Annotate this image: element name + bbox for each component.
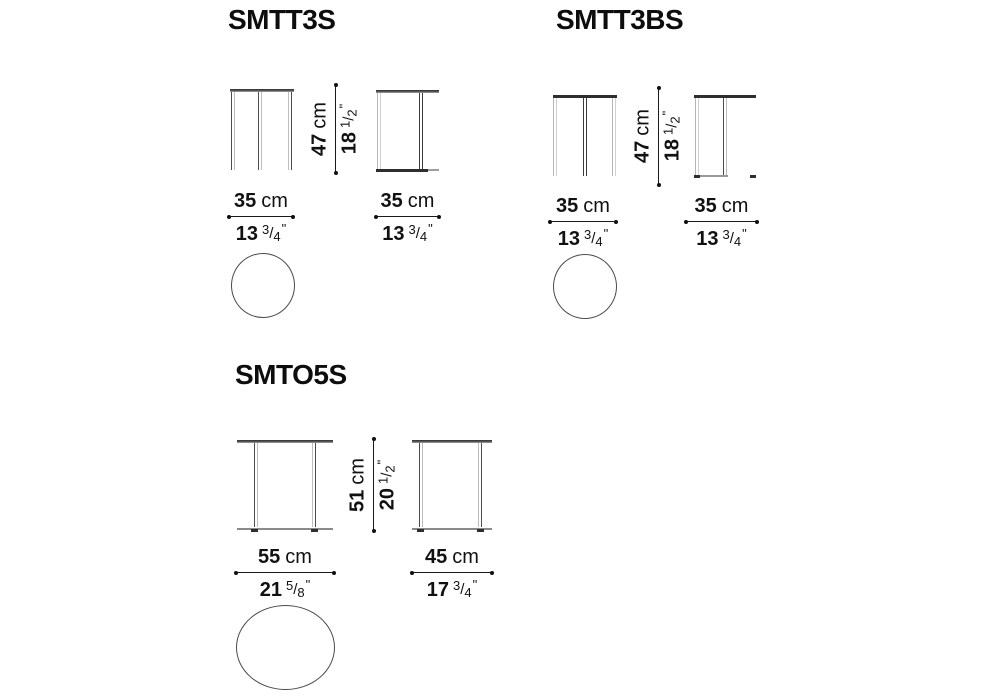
- leg-line: [419, 443, 423, 527]
- width-dimension-line: [229, 216, 293, 217]
- width-dimension-metric: 35cm: [229, 191, 293, 213]
- top-view-circle: [231, 253, 295, 318]
- dimension-endpoint-dot: [410, 571, 414, 575]
- width-cm-value: 35: [695, 195, 717, 217]
- front-view-drawing: [237, 440, 333, 532]
- width-dimension-imperial: 215/8": [236, 575, 334, 603]
- tabletop-edge: [376, 90, 439, 93]
- dimension-endpoint-dot: [227, 215, 231, 219]
- cm-unit: cm: [452, 546, 479, 568]
- dimension-endpoint-dot: [334, 83, 338, 87]
- height-dimension-imperial: 181/2": [660, 111, 685, 162]
- cm-unit: cm: [632, 109, 654, 136]
- inch-fraction: 3/4: [722, 233, 741, 248]
- leg-line: [478, 443, 482, 527]
- width-inch-value: 13: [696, 228, 718, 250]
- cm-unit: cm: [309, 102, 331, 129]
- side-view-drawing: [694, 95, 756, 178]
- front-width-dimension: 35cm 133/4": [229, 191, 293, 247]
- height-dimension-metric: 47cm: [632, 109, 655, 163]
- inch-fraction: 3/4: [453, 584, 472, 599]
- leg-line: [254, 443, 258, 527]
- height-cm-value: 51: [347, 490, 369, 512]
- cm-unit: cm: [261, 190, 288, 212]
- foot: [251, 529, 258, 532]
- dimension-endpoint-dot: [490, 571, 494, 575]
- cm-unit: cm: [347, 458, 369, 485]
- dimension-endpoint-dot: [234, 571, 238, 575]
- width-dimension-metric: 35cm: [550, 196, 616, 218]
- width-inch-value: 21: [260, 579, 282, 601]
- height-inch-value: 20: [377, 488, 399, 510]
- width-dimension-metric: 55cm: [236, 547, 334, 569]
- dimension-endpoint-dot: [684, 220, 688, 224]
- leg-line: [231, 92, 235, 170]
- width-dimension-metric: 35cm: [376, 191, 439, 213]
- cm-unit: cm: [722, 195, 749, 217]
- dimension-endpoint-dot: [372, 529, 376, 533]
- leg-line: [583, 98, 587, 176]
- tabletop-edge: [237, 440, 333, 443]
- width-inch-value: 13: [382, 223, 404, 245]
- inch-mark: ": [428, 221, 433, 236]
- foot: [694, 175, 700, 178]
- panel-edge-line: [612, 98, 616, 176]
- front-view-drawing: [230, 89, 294, 173]
- inch-mark: ": [375, 460, 390, 465]
- product-code-title: SMTT3BS: [556, 4, 683, 36]
- cm-unit: cm: [408, 190, 435, 212]
- inch-mark: ": [604, 226, 609, 241]
- base-edge-overhang: [428, 169, 439, 171]
- leg-line: [288, 92, 292, 170]
- height-inch-value: 18: [339, 132, 361, 154]
- foot: [311, 529, 318, 532]
- dimension-endpoint-dot: [614, 220, 618, 224]
- inch-mark: ": [306, 577, 311, 592]
- width-dimension-imperial: 133/4": [376, 219, 439, 247]
- base-edge: [376, 169, 428, 172]
- width-cm-value: 45: [425, 546, 447, 568]
- height-cm-value: 47: [632, 141, 654, 163]
- height-dimension-metric: 51cm: [347, 458, 370, 512]
- foot: [417, 529, 424, 532]
- width-inch-value: 17: [427, 579, 449, 601]
- width-dimension-line: [686, 221, 757, 222]
- top-view-ellipse: [236, 605, 335, 690]
- front-width-dimension: 55cm 215/8": [236, 547, 334, 603]
- width-cm-value: 55: [258, 546, 280, 568]
- side-width-dimension: 35cm 133/4": [686, 196, 757, 252]
- width-dimension-imperial: 173/4": [412, 575, 492, 603]
- inch-fraction: 3/4: [262, 228, 281, 243]
- panel-edge-line: [695, 98, 699, 175]
- dimension-endpoint-dot: [657, 183, 661, 187]
- foot: [477, 529, 484, 532]
- dimension-endpoint-dot: [374, 215, 378, 219]
- front-width-dimension: 35cm 133/4": [550, 196, 616, 252]
- width-cm-value: 35: [556, 195, 578, 217]
- spec-sheet: SMTT3S 47cm 181/2" 35cm: [0, 0, 1000, 700]
- leg-line: [258, 92, 262, 170]
- dimension-endpoint-dot: [437, 215, 441, 219]
- dimension-endpoint-dot: [332, 571, 336, 575]
- inch-fraction: 3/4: [408, 228, 427, 243]
- cm-unit: cm: [285, 546, 312, 568]
- height-dimension-imperial: 181/2": [337, 104, 362, 155]
- side-width-dimension: 45cm 173/4": [412, 547, 492, 603]
- inch-mark: ": [337, 104, 352, 109]
- front-view-drawing: [553, 95, 617, 179]
- width-dimension-imperial: 133/4": [229, 219, 293, 247]
- tabletop-edge: [230, 89, 294, 92]
- width-inch-value: 13: [236, 223, 258, 245]
- inch-fraction: 1/2: [344, 109, 359, 128]
- width-dimension-imperial: 133/4": [550, 224, 616, 252]
- inch-fraction: 3/4: [584, 233, 603, 248]
- side-view-drawing: [412, 440, 492, 532]
- width-dimension-line: [412, 572, 492, 573]
- dimension-endpoint-dot: [755, 220, 759, 224]
- leg-line: [419, 93, 423, 169]
- inch-mark: ": [742, 226, 747, 241]
- height-inch-value: 18: [662, 139, 684, 161]
- dimension-endpoint-dot: [334, 171, 338, 175]
- product-code-title: SMTT3S: [228, 4, 335, 36]
- inch-fraction: 1/2: [667, 116, 682, 135]
- height-dimension-imperial: 201/2": [375, 460, 400, 511]
- dimension-endpoint-dot: [291, 215, 295, 219]
- inch-mark: ": [660, 111, 675, 116]
- panel-edge-line: [553, 98, 557, 176]
- width-dimension-metric: 35cm: [686, 196, 757, 218]
- leg-line: [723, 98, 727, 175]
- dimension-endpoint-dot: [372, 437, 376, 441]
- width-dimension-line: [550, 221, 616, 222]
- width-dimension-metric: 45cm: [412, 547, 492, 569]
- height-dimension-metric: 47cm: [309, 102, 332, 156]
- inch-mark: ": [473, 577, 478, 592]
- inch-fraction: 1/2: [382, 465, 397, 484]
- dimension-endpoint-dot: [657, 86, 661, 90]
- width-cm-value: 35: [381, 190, 403, 212]
- top-view-circle: [553, 254, 617, 319]
- leg-line: [312, 443, 316, 527]
- foot: [750, 175, 756, 178]
- width-inch-value: 13: [558, 228, 580, 250]
- product-code-title: SMTO5S: [235, 359, 347, 391]
- width-dimension-line: [376, 216, 439, 217]
- cm-unit: cm: [583, 195, 610, 217]
- leg-line: [377, 93, 381, 169]
- inch-mark: ": [282, 221, 287, 236]
- dimension-endpoint-dot: [548, 220, 552, 224]
- width-dimension-line: [236, 572, 334, 573]
- width-cm-value: 35: [234, 190, 256, 212]
- side-view-drawing: [376, 90, 439, 172]
- side-width-dimension: 35cm 133/4": [376, 191, 439, 247]
- inch-fraction: 5/8: [286, 584, 305, 599]
- width-dimension-imperial: 133/4": [686, 224, 757, 252]
- height-cm-value: 47: [309, 134, 331, 156]
